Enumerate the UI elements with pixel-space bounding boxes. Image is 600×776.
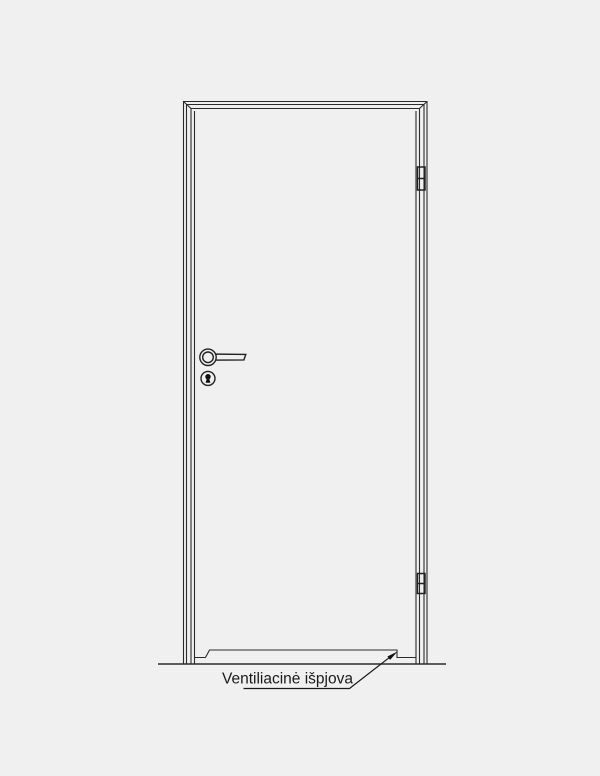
frame-outer-edge	[184, 102, 428, 665]
door-frame	[184, 102, 428, 665]
door-technical-drawing: Ventiliacinė išpjova	[0, 0, 600, 776]
door-handle-icon	[200, 349, 246, 365]
frame-chamfer-edge	[187, 105, 425, 665]
keyhole-icon	[201, 371, 215, 385]
handle-rosette-inner	[203, 352, 214, 363]
door-leaf	[195, 111, 417, 664]
ventilation-cutout	[195, 650, 417, 658]
door-diagram-canvas: Ventiliacinė išpjova	[0, 0, 600, 776]
frame-inner-edge	[191, 109, 420, 665]
callout-label: Ventiliacinė išpjova	[222, 671, 353, 688]
